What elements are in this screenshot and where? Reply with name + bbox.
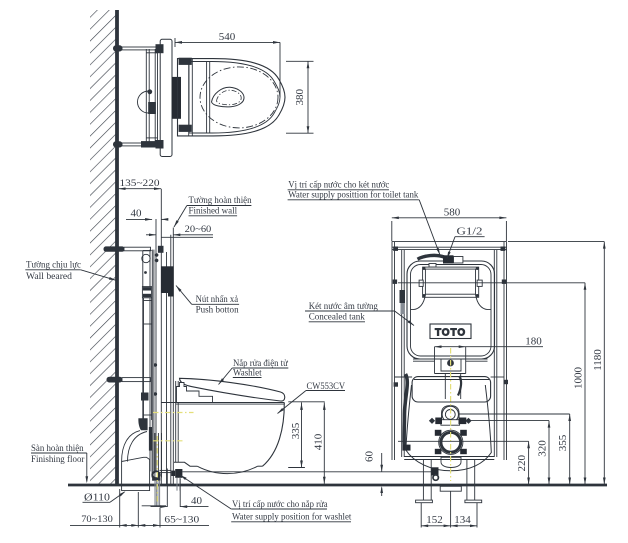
svg-text:134: 134 — [454, 514, 471, 526]
svg-text:Washlet: Washlet — [233, 369, 262, 379]
svg-text:Vị trí cấp nước cho két nước: Vị trí cấp nước cho két nước — [288, 180, 389, 191]
svg-text:410: 410 — [312, 433, 324, 450]
svg-text:Vị trí cấp nước cho nắp rửa: Vị trí cấp nước cho nắp rửa — [232, 499, 328, 510]
svg-text:Sàn hoàn thiện: Sàn hoàn thiện — [31, 444, 84, 454]
svg-text:Finishing floor: Finishing floor — [31, 454, 85, 465]
svg-text:355: 355 — [557, 434, 569, 451]
svg-text:G1/2: G1/2 — [457, 225, 483, 237]
svg-text:Tường hoàn thiện: Tường hoàn thiện — [189, 196, 252, 206]
svg-text:1180: 1180 — [592, 349, 604, 371]
svg-text:152: 152 — [426, 514, 443, 526]
svg-text:180: 180 — [525, 335, 542, 347]
svg-text:Tường chịu lực: Tường chịu lực — [26, 260, 81, 270]
svg-text:40: 40 — [191, 495, 203, 507]
svg-text:135~220: 135~220 — [120, 179, 160, 189]
svg-text:Ø110: Ø110 — [84, 491, 111, 503]
svg-text:580: 580 — [444, 206, 461, 218]
svg-text:380: 380 — [294, 88, 306, 105]
svg-text:Concealed tank: Concealed tank — [309, 313, 365, 323]
svg-text:220: 220 — [516, 455, 528, 472]
svg-text:Nắp rửa điện tử: Nắp rửa điện tử — [233, 358, 289, 369]
svg-text:Water supply position for wash: Water supply position for washlet — [232, 512, 352, 523]
svg-text:Finished wall: Finished wall — [189, 207, 238, 217]
svg-text:40: 40 — [131, 208, 143, 220]
svg-text:TOTO: TOTO — [435, 328, 466, 339]
svg-text:335: 335 — [290, 422, 302, 439]
svg-text:20~60: 20~60 — [185, 225, 212, 235]
svg-text:Wall beared: Wall beared — [26, 272, 72, 282]
svg-text:60: 60 — [364, 451, 376, 463]
svg-text:Két nước âm tường: Két nước âm tường — [309, 302, 378, 312]
svg-text:Push botton: Push botton — [196, 306, 239, 316]
svg-text:1000: 1000 — [573, 367, 585, 390]
svg-text:65~130: 65~130 — [164, 515, 199, 525]
svg-text:Water supply posittion for toi: Water supply posittion for toilet tank — [288, 190, 418, 201]
svg-text:CW553CV: CW553CV — [307, 382, 346, 392]
svg-text:Nút nhấn xả: Nút nhấn xả — [196, 294, 239, 305]
svg-text:540: 540 — [219, 31, 236, 43]
svg-text:70~130: 70~130 — [81, 515, 113, 525]
svg-text:320: 320 — [537, 440, 549, 457]
